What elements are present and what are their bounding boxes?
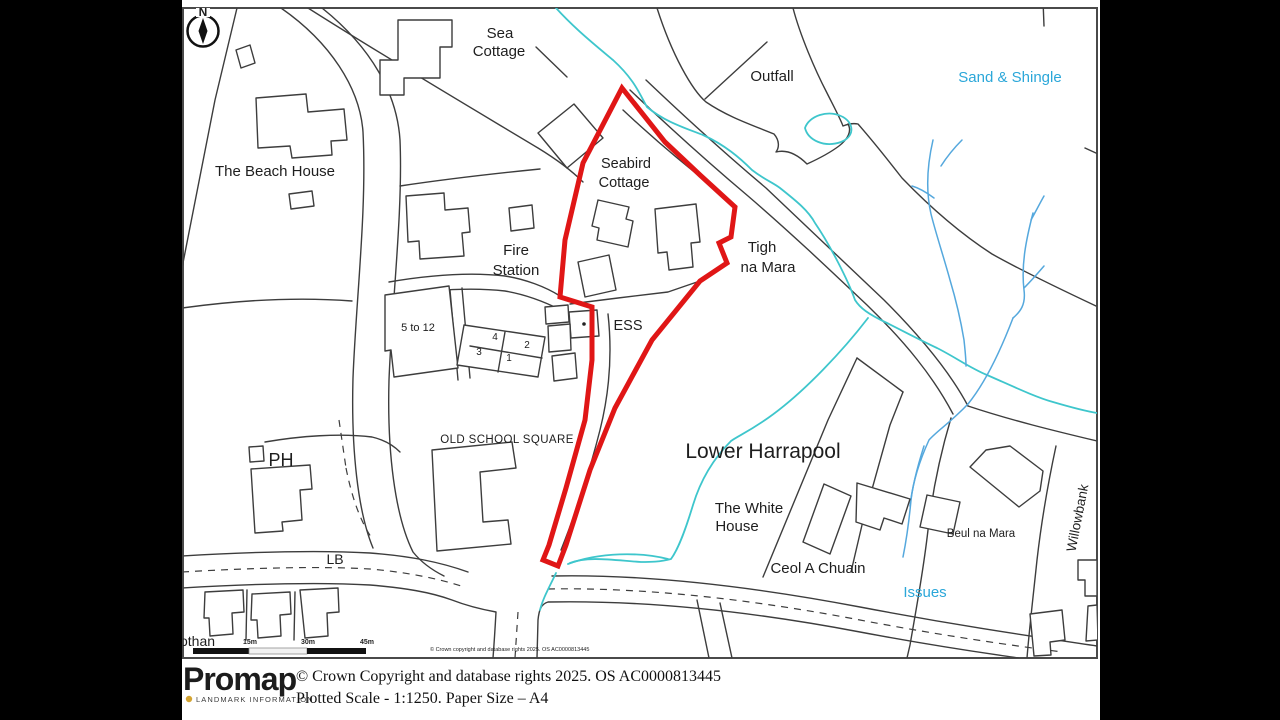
label-othan: othan: [180, 633, 215, 649]
label-issues: Issues: [903, 584, 946, 601]
label-tigh-na-mara-line2: na Mara: [740, 259, 796, 276]
left-letterbox: [0, 0, 182, 720]
label-the-white-house-line2: House: [715, 518, 758, 535]
label-the-beach-house: The Beach House: [215, 163, 335, 180]
scale-tick: 30m: [301, 639, 315, 646]
scale-tick: 45m: [360, 639, 374, 646]
building-outline: [509, 205, 534, 231]
map-copyright-small: © Crown copyright and database rights 20…: [430, 646, 589, 653]
building-outline: [592, 200, 633, 247]
building-outline: [545, 305, 569, 324]
label-seabird-cottage-line2: Cottage: [599, 175, 650, 191]
promap-plot-view: N 15m 30m 45m Sea Cottage Outfall Sand &…: [0, 0, 1280, 720]
label-beul-na-mara: Beul na Mara: [947, 528, 1016, 540]
label-ph: PH: [268, 450, 293, 470]
label-unit-number: 4: [492, 332, 498, 343]
label-lower-harrapool: Lower Harrapool: [685, 440, 840, 463]
label-fire-station-line2: Station: [493, 262, 540, 279]
building-outline: [578, 255, 616, 297]
building-outline: [289, 191, 314, 209]
label-five-to-twelve: 5 to 12: [401, 322, 435, 334]
label-unit-number: 3: [476, 347, 482, 358]
building-outline: [552, 353, 577, 381]
label-unit-number: 2: [524, 340, 530, 351]
label-outfall: Outfall: [750, 68, 793, 85]
landmark-dot-icon: [186, 696, 192, 702]
label-unit-number: 1: [506, 353, 512, 364]
right-letterbox: [1100, 0, 1280, 720]
label-lb: LB: [326, 551, 343, 567]
label-seabird-cottage-line1: Seabird: [601, 156, 651, 172]
building-outline: [548, 324, 571, 352]
promap-logo: Promap: [183, 661, 297, 697]
ess-dot: [582, 322, 586, 326]
scale-tick: 15m: [243, 639, 257, 646]
footer-copyright-line2: Plotted Scale - 1:1250. Paper Size – A4: [296, 690, 548, 707]
label-tigh-na-mara-line1: Tigh: [748, 239, 777, 256]
label-fire-station-line1: Fire: [503, 242, 529, 259]
building-outline: [1086, 605, 1098, 641]
label-ceol-a-chuain: Ceol A Chuain: [770, 560, 865, 577]
label-ess: ESS: [613, 318, 642, 334]
label-the-white-house-line1: The White: [715, 500, 783, 517]
label-old-school-square: OLD SCHOOL SQUARE: [440, 434, 574, 446]
footer-copyright-line1: © Crown Copyright and database rights 20…: [296, 668, 721, 685]
label-sand-and-shingle: Sand & Shingle: [958, 69, 1061, 86]
label-sea-cottage-line1: Sea: [487, 25, 514, 42]
label-sea-cottage-line2: Cottage: [473, 43, 526, 60]
building-outline: [249, 446, 264, 462]
